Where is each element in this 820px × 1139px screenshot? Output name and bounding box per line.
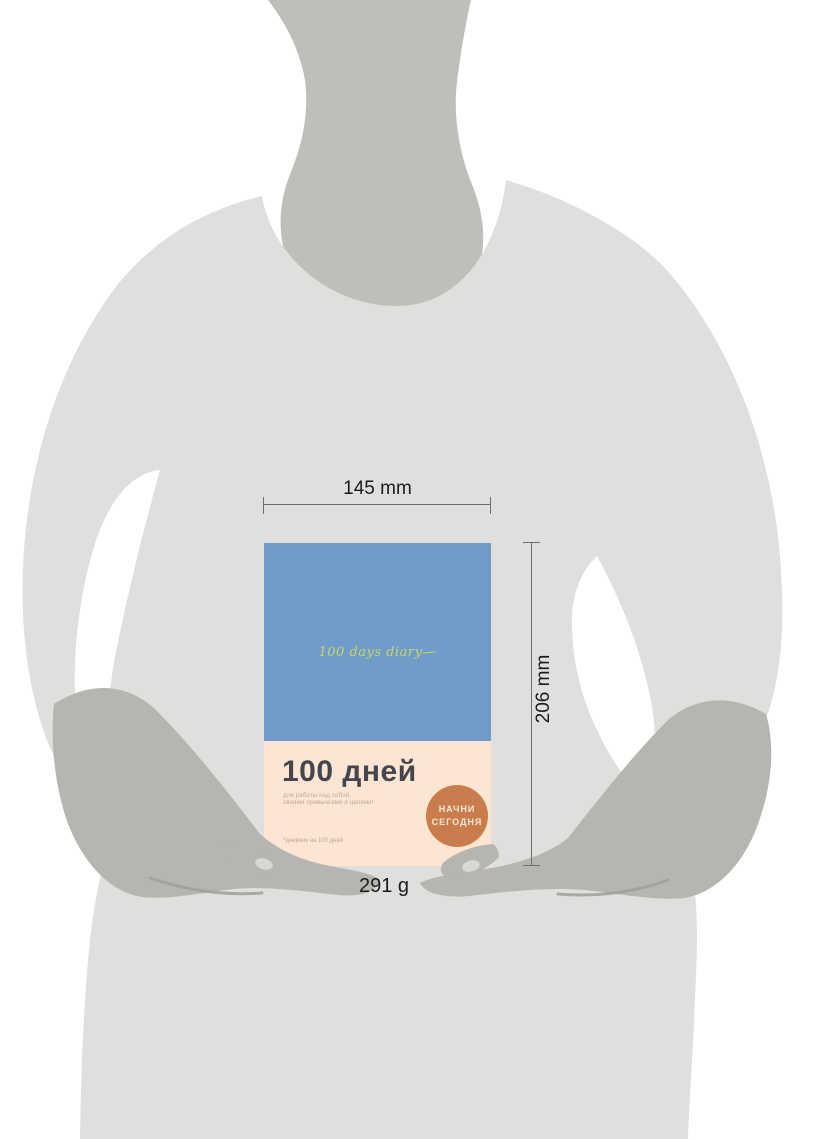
hands-layer <box>0 0 820 1139</box>
width-dimension-line <box>264 504 491 505</box>
product-size-figure: 100 days diary 100 дней для работы над с… <box>0 0 820 1139</box>
width-label: 145 mm <box>264 478 491 500</box>
height-tick-top <box>523 542 540 543</box>
height-dimension-line <box>531 543 532 866</box>
weight-label: 291 g <box>334 875 434 898</box>
height-label: 206 mm <box>533 649 553 729</box>
height-tick-bottom <box>523 865 540 866</box>
left-forearm-hand-shape <box>53 688 380 898</box>
